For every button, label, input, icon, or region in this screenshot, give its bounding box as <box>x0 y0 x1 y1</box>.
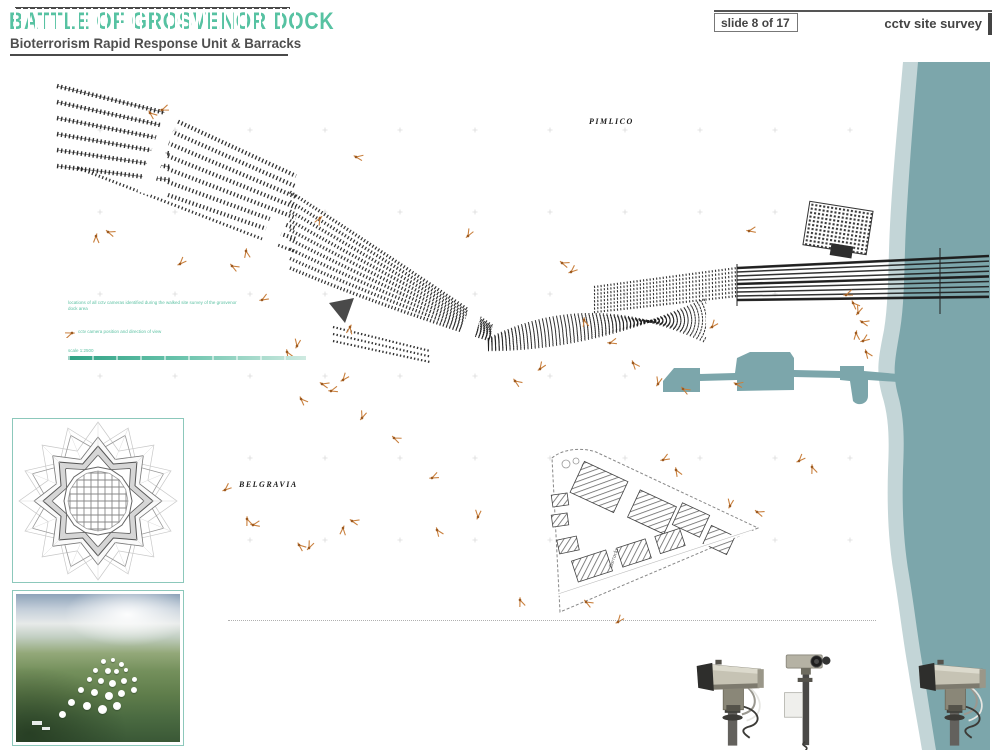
cctv-marker <box>105 228 116 236</box>
cctv-marker <box>863 348 873 359</box>
aerial-photo-inset <box>12 590 184 746</box>
radome <box>119 662 124 667</box>
header-end-bar <box>988 13 992 35</box>
radome <box>114 669 119 674</box>
cctv-marker <box>229 262 240 272</box>
radome <box>131 687 137 693</box>
cctv-camera-photo-side-1 <box>697 660 764 746</box>
cctv-marker <box>512 377 523 387</box>
radome <box>98 705 107 714</box>
district-label-pimlico: PIMLICO <box>589 117 634 126</box>
radome <box>109 680 116 687</box>
cctv-marker <box>297 395 308 406</box>
building <box>32 721 42 725</box>
cctv-marker <box>295 541 306 551</box>
cctv-marker <box>475 510 481 520</box>
legend-cctv-marker-icon <box>62 326 76 338</box>
slide-canvas: Barracks PIMLICOBELGRAVIA locations of a… <box>0 0 1000 750</box>
radome <box>68 699 75 706</box>
radome <box>87 677 92 682</box>
cctv-marker <box>250 521 260 528</box>
cctv-marker <box>708 320 718 331</box>
cctv-marker <box>94 234 100 244</box>
cctv-marker <box>339 373 349 384</box>
cctv-marker <box>243 248 250 258</box>
radome <box>91 689 98 696</box>
radome <box>59 711 66 718</box>
building <box>42 727 50 730</box>
survey-section-line <box>228 620 876 621</box>
cctv-marker <box>258 294 269 304</box>
cctv-marker <box>629 359 639 370</box>
radome <box>105 692 113 700</box>
legend-line-2: cctv camera position and direction of vi… <box>78 329 161 335</box>
radome <box>93 668 98 673</box>
cctv-marker <box>854 305 862 316</box>
cctv-marker <box>346 324 353 334</box>
radome <box>124 668 128 672</box>
header-right: slide 8 of 17 cctv site survey <box>714 10 992 36</box>
radome <box>105 668 111 674</box>
cctv-marker <box>517 597 525 608</box>
cctv-marker <box>654 376 662 387</box>
legend-line-1: locations of all cctv cameras identified… <box>68 300 238 311</box>
cctv-marker <box>673 466 683 477</box>
cctv-marker <box>340 525 346 535</box>
cctv-marker <box>176 257 187 268</box>
header-rule-bottom <box>10 54 288 56</box>
radome <box>78 687 84 693</box>
radome <box>132 677 137 682</box>
cctv-marker <box>294 339 301 349</box>
cctv-camera-photo-side-2 <box>919 660 986 746</box>
cctv-marker <box>727 499 734 509</box>
cctv-marker <box>849 299 860 310</box>
radome <box>118 690 125 697</box>
map-legend: locations of all cctv cameras identified… <box>68 300 238 311</box>
cctv-marker <box>809 464 817 475</box>
page-title: BATTLE OF GROSVENOR DOCK <box>9 8 334 36</box>
radome <box>98 678 104 684</box>
slide-indicator: slide 8 of 17 <box>714 13 798 32</box>
cctv-marker <box>795 454 806 465</box>
cctv-marker <box>559 259 570 267</box>
cctv-marker <box>328 386 339 394</box>
cctv-marker <box>464 228 474 239</box>
cctv-marker <box>349 517 360 525</box>
page-subtitle: Bioterrorism Rapid Response Unit & Barra… <box>10 35 301 51</box>
cctv-marker <box>853 330 859 340</box>
scale-bar <box>68 356 306 360</box>
cctv-marker <box>859 318 870 326</box>
radome <box>101 659 106 664</box>
cctv-camera-photo-front <box>785 655 831 750</box>
cctv-camera-photos <box>680 640 1000 750</box>
canal-basin <box>663 352 898 404</box>
district-label-belgravia: BELGRAVIA <box>239 480 298 489</box>
cctv-marker <box>221 483 232 493</box>
cctv-marker <box>358 410 366 421</box>
street-map-fragment: Barracks <box>551 449 758 612</box>
star-fort-inset <box>12 418 184 583</box>
cctv-marker <box>659 454 670 464</box>
survey-title: cctv site survey <box>884 16 982 31</box>
cctv-marker <box>607 338 618 346</box>
header-right-rule <box>714 10 992 12</box>
cctv-marker <box>859 335 870 345</box>
cctv-marker <box>746 227 756 234</box>
cctv-marker <box>434 526 444 537</box>
cctv-marker <box>754 508 765 516</box>
radome <box>121 678 127 684</box>
legend-line-3: scale 1:2500 <box>68 348 94 354</box>
radome <box>113 702 121 710</box>
star-fort-plan <box>13 419 183 582</box>
cctv-marker <box>391 434 402 443</box>
cctv-marker <box>353 154 363 161</box>
radome <box>83 702 91 710</box>
cctv-marker <box>567 265 578 275</box>
track-gaps <box>137 104 484 364</box>
cctv-marker <box>319 380 330 388</box>
cctv-marker <box>305 540 314 551</box>
aerial-photo-radomes <box>16 594 180 742</box>
cctv-marker <box>428 472 439 481</box>
radome <box>111 658 115 662</box>
cctv-marker <box>536 362 546 373</box>
